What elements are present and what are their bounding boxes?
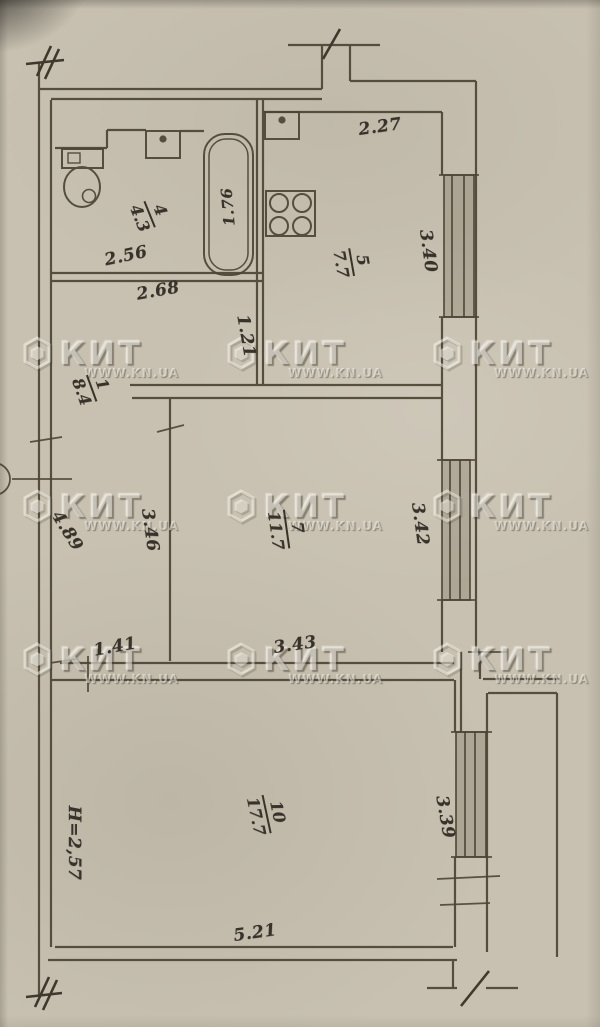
dim-ceiling-height: H=2,57	[64, 806, 84, 881]
stove-icon	[266, 191, 315, 236]
windows	[442, 175, 486, 857]
axis-mark-bottom-left	[26, 977, 62, 1010]
break-mark-bottom-right	[461, 971, 489, 1006]
room-label-living: 7 11.7	[265, 507, 309, 551]
kitchen-window	[444, 175, 474, 317]
kitchen-vent-icon	[265, 112, 299, 139]
floor-plan-scan: КИТ WWW.KN.UA КИТ WWW.KN.UA КИТ WWW.KN.U…	[0, 0, 600, 1027]
dim-bathtub: 1.76	[217, 187, 238, 227]
axis-mark-top-left	[26, 46, 64, 79]
toilet-icon	[62, 149, 103, 207]
living-window	[442, 460, 470, 600]
bath-vent-icon	[146, 131, 180, 158]
main-room-window	[456, 732, 486, 857]
room-label-main: 10 17.7	[244, 791, 290, 837]
fixtures	[62, 112, 315, 275]
axis-bubble	[0, 463, 10, 495]
